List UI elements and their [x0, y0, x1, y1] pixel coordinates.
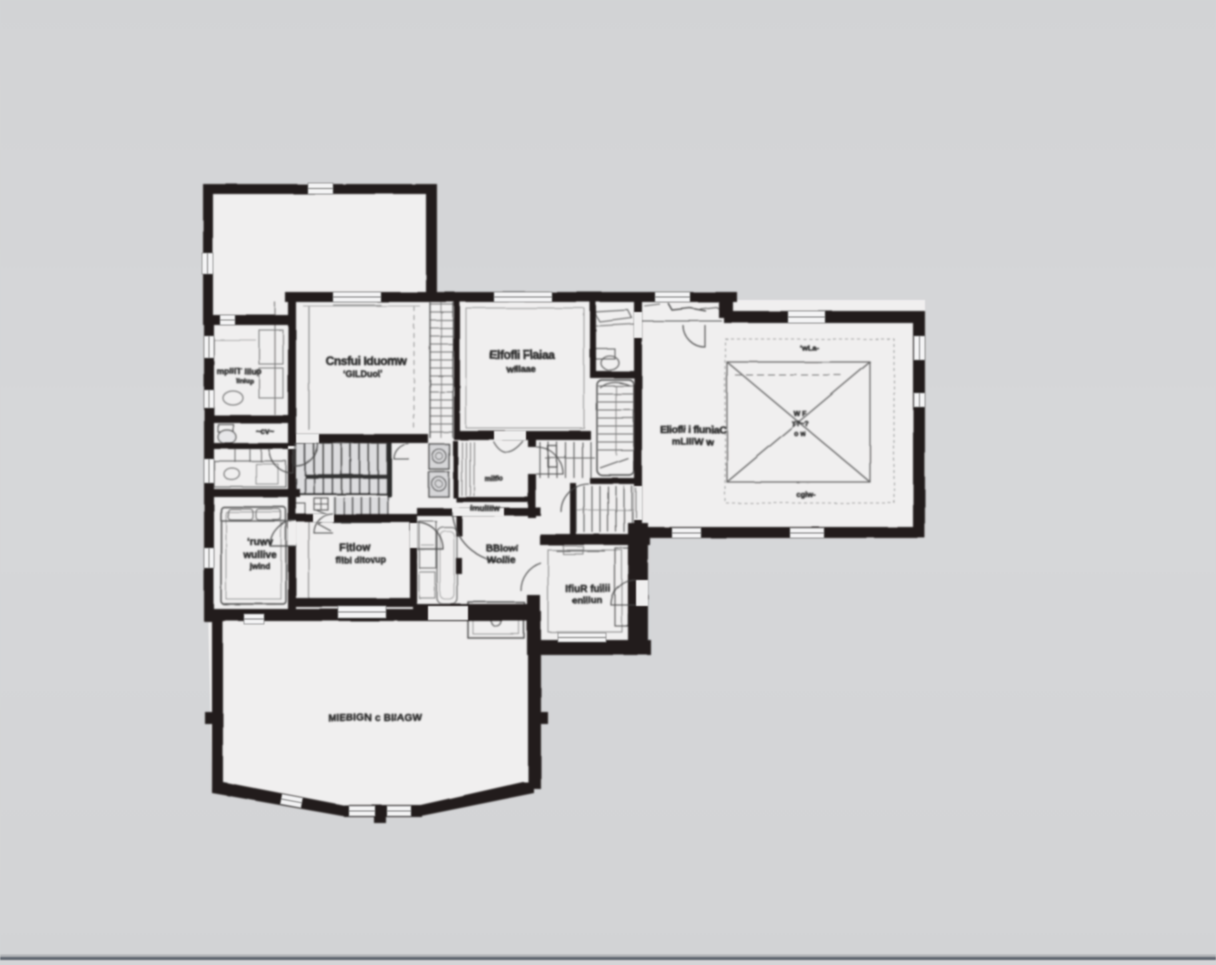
svg-text:imuliiiw: imuliiiw	[470, 504, 500, 513]
svg-text:mLiliW w: mLiliW w	[672, 437, 714, 448]
svg-text:jwind: jwind	[249, 562, 271, 571]
svg-text:W F: W F	[794, 411, 808, 418]
svg-text:wullive: wullive	[242, 550, 277, 561]
svg-text:Elfofli Flaiaa: Elfofli Flaiaa	[489, 348, 555, 362]
svg-text:cgiw-: cgiw-	[796, 490, 816, 499]
svg-text:‘wLa-: ‘wLa-	[799, 343, 819, 352]
svg-text:Fitlow: Fitlow	[339, 542, 371, 554]
svg-text:willaae: willaae	[505, 364, 536, 374]
svg-text:mpliiT lilup: mpliiT lilup	[217, 366, 262, 376]
svg-text:MIEBIGN c BIIAGW: MIEBIGN c BIIAGW	[328, 713, 423, 724]
svg-text:Cnsfui Iduomw: Cnsfui Iduomw	[326, 354, 408, 368]
svg-text:liniup: liniup	[236, 378, 253, 385]
svg-text:Eliofli i fluniaC: Eliofli i fluniaC	[660, 424, 727, 436]
svg-text:enlilun: enlilun	[572, 595, 603, 606]
svg-text:Y?~?: Y?~?	[791, 421, 808, 428]
svg-text:fllbi ditovup: fllbi ditovup	[336, 555, 387, 565]
svg-text:Wollie: Wollie	[486, 555, 516, 566]
svg-text:IfiuR fuilii: IfiuR fuilii	[565, 584, 611, 595]
svg-text:o w: o w	[794, 431, 806, 438]
svg-text:~cv~: ~cv~	[256, 427, 275, 436]
svg-text:‘ruwv: ‘ruwv	[247, 537, 274, 548]
svg-text:‘GILDuol’: ‘GILDuol’	[343, 369, 383, 379]
svg-text:BBlowi: BBlowi	[486, 543, 518, 554]
svg-text:milfio: milfio	[485, 476, 504, 483]
